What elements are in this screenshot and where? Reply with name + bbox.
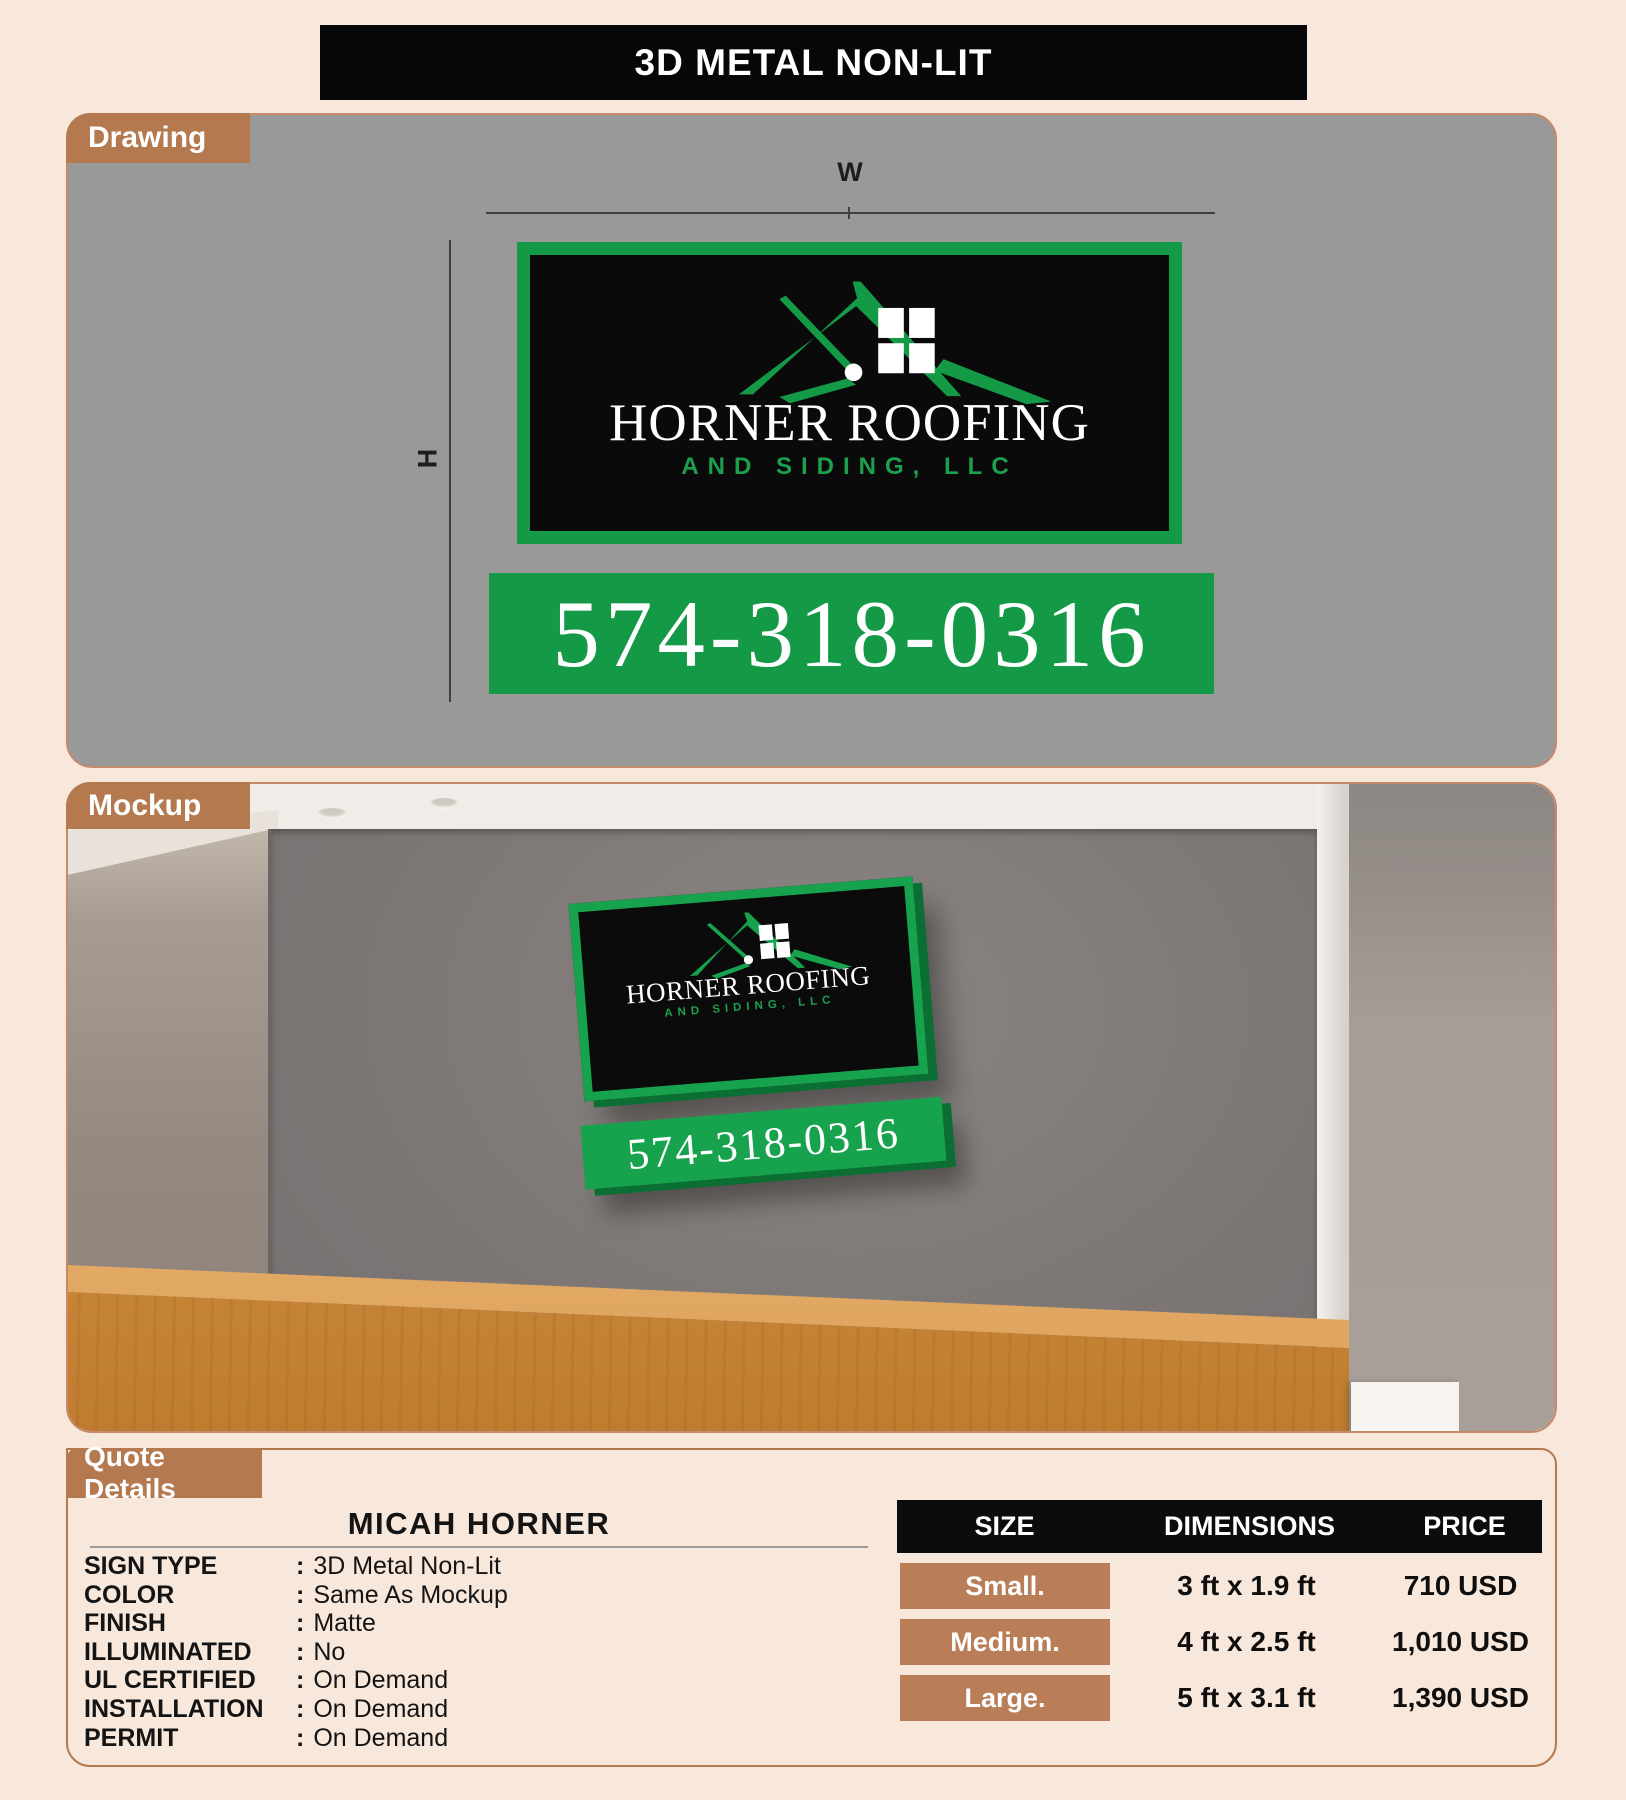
detail-row: COLOR : Same As Mockup [84,1581,864,1610]
dimensions-column-header: DIMENSIONS [1112,1511,1387,1542]
detail-separator: : [296,1609,304,1638]
detail-label: ILLUMINATED [84,1638,296,1667]
quote-section-label: Quote Details [84,1441,262,1505]
width-dimension-line [486,212,1215,214]
price-column-header: PRICE [1387,1511,1542,1542]
detail-value: On Demand [313,1666,448,1695]
streak-ball-icon [844,364,862,382]
mockup-section-label: Mockup [88,789,201,823]
mockup-scene: HORNER ROOFING AND SIDING, LLC 574-318-0… [68,784,1555,1431]
size-badge: Small. [900,1563,1110,1609]
price-value: 1,390 USD [1383,1682,1538,1714]
detail-label: COLOR [84,1581,296,1610]
dimensions-value: 3 ft x 1.9 ft [1110,1570,1383,1602]
drawing-section-tab: Drawing [66,113,250,163]
mockup-counter-end-box [1351,1382,1459,1433]
customer-name-divider [90,1546,868,1548]
sign-company-name: HORNER ROOFING [609,395,1090,451]
detail-row: PERMIT : On Demand [84,1724,864,1753]
price-table: SIZE DIMENSIONS PRICE Small. 3 ft x 1.9 … [897,1500,1542,1721]
detail-row: ILLUMINATED : No [84,1638,864,1667]
dimensions-value: 5 ft x 3.1 ft [1110,1682,1383,1714]
detail-value: 3D Metal Non-Lit [313,1552,501,1581]
size-column-header: SIZE [897,1511,1112,1542]
sign-drawing-main-panel: HORNER ROOFING AND SIDING, LLC [517,242,1182,544]
quote-section-tab: Quote Details [66,1448,262,1498]
roof-logo-icon [645,255,1055,405]
detail-value: Matte [313,1609,376,1638]
detail-separator: : [296,1666,304,1695]
detail-row: SIGN TYPE : 3D Metal Non-Lit [84,1552,864,1581]
table-row: Medium. 4 ft x 2.5 ft 1,010 USD [897,1619,1542,1665]
size-badge: Large. [900,1675,1110,1721]
detail-separator: : [296,1581,304,1610]
detail-separator: : [296,1638,304,1667]
table-row: Small. 3 ft x 1.9 ft 710 USD [897,1563,1542,1609]
table-row: Large. 5 ft x 3.1 ft 1,390 USD [897,1675,1542,1721]
mockup-right-wall [1349,784,1557,1433]
sign-phone-number: 574-318-0316 [552,579,1150,689]
ceiling-light-icon [318,808,346,819]
detail-label: FINISH [84,1609,296,1638]
price-table-header: SIZE DIMENSIONS PRICE [897,1500,1542,1553]
detail-value: No [313,1638,345,1667]
mockup-sign-group: HORNER ROOFING AND SIDING, LLC 574-318-0… [563,875,947,1189]
sign-tagline: AND SIDING, LLC [681,453,1017,481]
mockup-panel: HORNER ROOFING AND SIDING, LLC 574-318-0… [66,782,1557,1433]
detail-value: Same As Mockup [313,1581,508,1610]
mockup-section-tab: Mockup [66,782,250,829]
mockup-sign-main-panel: HORNER ROOFING AND SIDING, LLC [569,876,929,1101]
price-value: 1,010 USD [1383,1626,1538,1658]
width-dimension-label: W [830,157,870,188]
width-dimension-tick [848,207,850,219]
detail-row: FINISH : Matte [84,1609,864,1638]
drawing-section-label: Drawing [88,121,206,155]
page-title: 3D METAL NON-LIT [320,25,1307,100]
detail-label: UL CERTIFIED [84,1666,296,1695]
dimensions-value: 4 ft x 2.5 ft [1110,1626,1383,1658]
detail-separator: : [296,1695,304,1724]
detail-row: UL CERTIFIED : On Demand [84,1666,864,1695]
detail-value: On Demand [313,1695,448,1724]
detail-row: INSTALLATION : On Demand [84,1695,864,1724]
detail-separator: : [296,1552,304,1581]
detail-label: SIGN TYPE [84,1552,296,1581]
height-dimension-line [449,240,451,702]
detail-label: PERMIT [84,1724,296,1753]
detail-separator: : [296,1724,304,1753]
size-badge: Medium. [900,1619,1110,1665]
height-dimension-label: H [413,439,444,479]
sign-drawing-phone-bar: 574-318-0316 [489,573,1214,694]
drawing-panel: W H HORNER ROOFING AND SIDING, LLC [66,113,1557,768]
detail-value: On Demand [313,1724,448,1753]
detail-label: INSTALLATION [84,1695,296,1724]
quote-details-list: SIGN TYPE : 3D Metal Non-Lit COLOR : Sam… [84,1552,864,1752]
customer-name: MICAH HORNER [90,1506,868,1542]
price-value: 710 USD [1383,1570,1538,1602]
ceiling-light-icon [430,798,458,809]
